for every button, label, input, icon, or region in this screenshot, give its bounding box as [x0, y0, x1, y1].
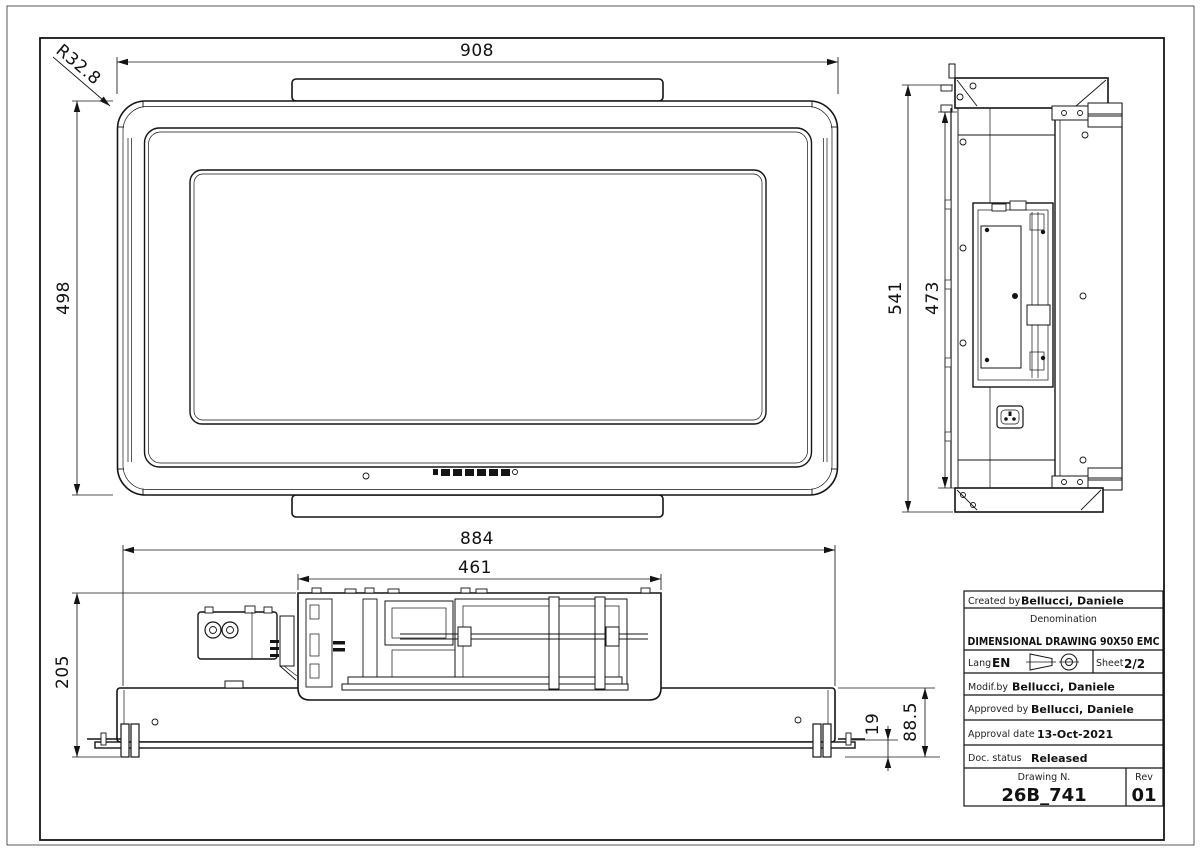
- svg-text:19: 19: [863, 713, 883, 736]
- drawing-sheet: 908 498 R32.8: [0, 0, 1200, 849]
- side-bracket-top: [1052, 103, 1122, 127]
- side-bottom-cap: [955, 488, 1103, 512]
- svg-text:541: 541: [886, 281, 906, 315]
- rail-details: [945, 139, 966, 441]
- drawing-number-label: Drawing N.: [1018, 772, 1071, 783]
- svg-text:205: 205: [53, 655, 73, 689]
- top-view: [118, 79, 838, 517]
- fan-housing: [298, 588, 661, 700]
- top-tab: [292, 79, 663, 101]
- dim-top-height: 498: [54, 101, 113, 495]
- svg-text:461: 461: [458, 558, 492, 578]
- side-view: [941, 64, 1122, 512]
- power-socket-icon: [997, 406, 1023, 428]
- dim-corner-radius: R32.8: [52, 41, 110, 106]
- doc-status-value: Released: [1031, 752, 1087, 765]
- svg-text:R32.8: R32.8: [52, 41, 105, 90]
- rev-value: 01: [1131, 785, 1156, 806]
- sheet-label: Sheet: [1096, 658, 1124, 669]
- lang-value: EN: [992, 656, 1010, 670]
- drawing-number-value: 26B_741: [1001, 785, 1086, 806]
- svg-text:498: 498: [54, 281, 74, 315]
- approval-date-value: 13-Oct-2021: [1037, 728, 1113, 741]
- side-fan-unit: [973, 201, 1053, 387]
- title-block: Created by Bellucci, Daniele Denominatio…: [964, 591, 1163, 806]
- doc-status-label: Doc. status: [968, 753, 1022, 764]
- modified-by-value: Bellucci, Daniele: [1012, 681, 1115, 694]
- front-view: [87, 588, 865, 757]
- junction-box: [198, 606, 277, 659]
- glass-plate: [95, 742, 855, 748]
- svg-text:884: 884: [460, 529, 494, 549]
- modified-by-label: Modif.by: [968, 682, 1008, 693]
- side-top-cap: [955, 78, 1108, 108]
- glass-panel: [118, 101, 838, 495]
- lang-label: Lang: [968, 658, 991, 669]
- svg-text:473: 473: [923, 281, 943, 315]
- approved-by-value: Bellucci, Daniele: [1031, 703, 1134, 716]
- bottom-tab: [292, 495, 663, 517]
- dim-foot-offset: 19: [845, 713, 940, 771]
- created-by-value: Bellucci, Daniele: [1021, 595, 1124, 608]
- created-by-label: Created by: [968, 596, 1021, 607]
- side-bracket-bottom: [1052, 468, 1122, 490]
- svg-text:908: 908: [460, 41, 494, 61]
- svg-text:88.5: 88.5: [901, 702, 921, 742]
- approval-date-label: Approval date: [968, 729, 1035, 740]
- denomination-label: Denomination: [1030, 614, 1097, 625]
- sheet-value: 2/2: [1124, 657, 1145, 671]
- dim-fan-unit-width: 461: [298, 558, 661, 590]
- denomination-value: DIMENSIONAL DRAWING 90X50 EMC: [968, 635, 1160, 648]
- approved-by-label: Approved by: [968, 704, 1029, 715]
- rev-label: Rev: [1135, 772, 1153, 783]
